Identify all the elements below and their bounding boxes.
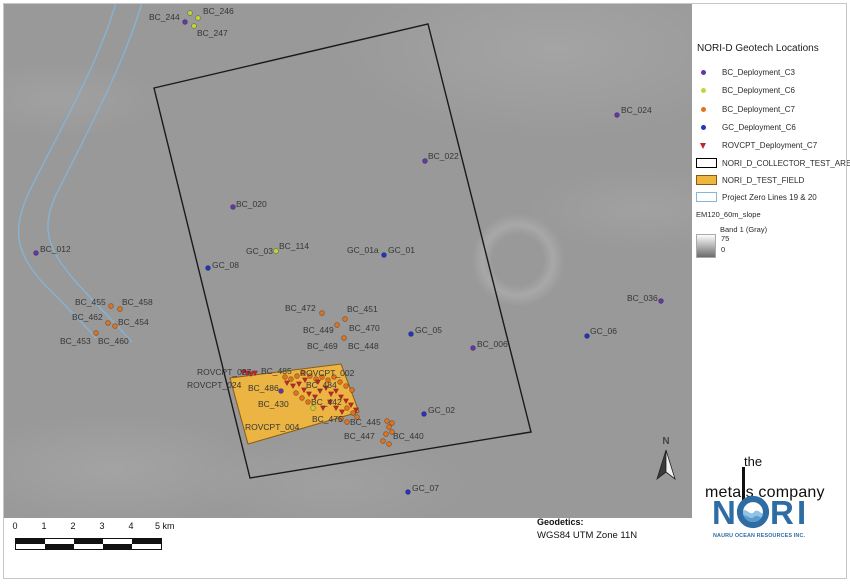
map-layout-page: { "colors": { "map_bg": "#999999", "c3":…: [0, 0, 850, 584]
layout-frame: [3, 3, 847, 579]
